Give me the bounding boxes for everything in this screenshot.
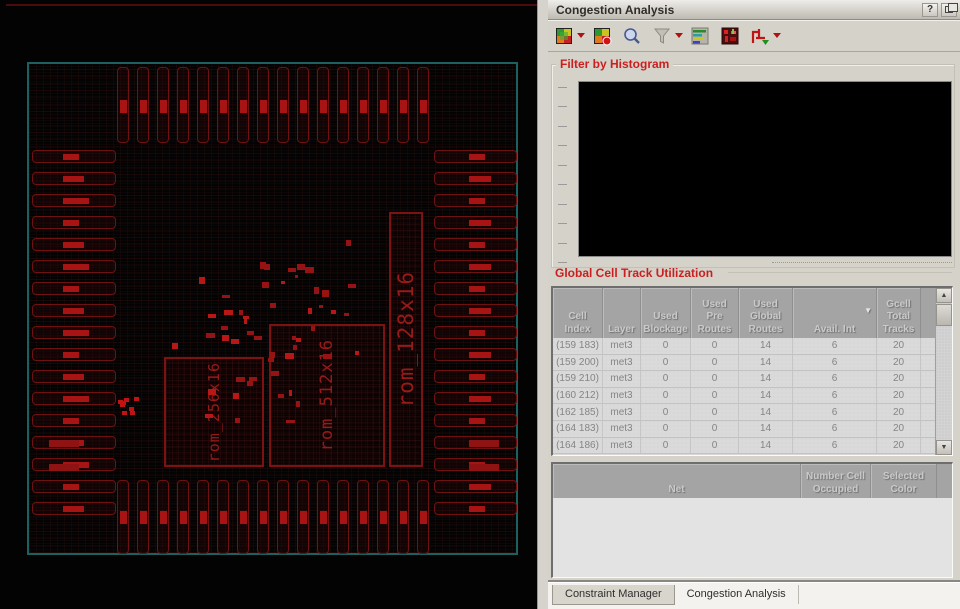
table-cell: 14 xyxy=(739,355,793,371)
pad-label-mark xyxy=(63,154,79,160)
io-pad[interactable] xyxy=(297,67,309,143)
placed-cell xyxy=(270,303,276,308)
net-column-header-1[interactable]: Number Cell Occupied xyxy=(801,464,871,498)
column-header-5[interactable]: Avail. Int▼ xyxy=(793,288,877,338)
pad-label-mark xyxy=(63,308,84,314)
pad-label-mark xyxy=(469,220,491,226)
io-pad[interactable] xyxy=(32,194,116,207)
macro-label: rom_256x16 xyxy=(205,362,223,462)
pad-label-mark xyxy=(63,374,84,380)
heatmap-dropdown-arrow[interactable] xyxy=(577,33,585,38)
io-pad[interactable] xyxy=(32,348,116,361)
histogram-axis-ticks xyxy=(558,87,574,263)
table-cell: 14 xyxy=(739,338,793,354)
placed-cell xyxy=(292,336,296,340)
pad-label-mark xyxy=(240,511,247,524)
table-cell: 0 xyxy=(641,388,691,404)
placed-cell xyxy=(295,275,298,278)
table-cell: 0 xyxy=(641,421,691,437)
placed-cell xyxy=(297,264,305,270)
io-pad[interactable] xyxy=(32,370,116,383)
utilization-table-frame: Cell IndexLayerUsed BlockageUsed Pre Rou… xyxy=(551,286,953,456)
pad-label-mark xyxy=(220,100,227,113)
axis-tick xyxy=(558,165,567,166)
io-pad[interactable] xyxy=(317,67,329,143)
help-button[interactable]: ? xyxy=(922,3,938,17)
io-pad[interactable] xyxy=(357,480,369,554)
pad-label-mark xyxy=(260,100,267,113)
io-pad[interactable] xyxy=(32,502,116,515)
io-pad[interactable] xyxy=(377,67,389,143)
axis-tick xyxy=(558,126,567,127)
io-pad[interactable] xyxy=(397,480,409,554)
axis-tick xyxy=(558,106,567,107)
pad-label-mark xyxy=(160,511,167,524)
io-pad[interactable] xyxy=(377,480,389,554)
io-pad[interactable] xyxy=(257,67,269,143)
placed-cell xyxy=(269,352,275,358)
axis-tick xyxy=(558,223,567,224)
hotspot-map-icon xyxy=(720,26,740,46)
io-pad[interactable] xyxy=(32,260,116,273)
io-pad[interactable] xyxy=(397,67,409,143)
macro-rom-256x16[interactable]: rom_256x16 xyxy=(164,357,264,467)
io-pad[interactable] xyxy=(434,414,517,427)
table-cell: 20 xyxy=(877,388,921,404)
placed-cell xyxy=(118,400,123,404)
placed-cell xyxy=(288,268,296,272)
table-cell: met3 xyxy=(603,388,641,404)
table-cell: 0 xyxy=(641,438,691,454)
io-pad[interactable] xyxy=(417,67,429,143)
pad-label-mark xyxy=(360,100,367,113)
die-boundary: rom_256x16 rom_512x16 rom_128x16 xyxy=(27,62,518,555)
pad-label-mark xyxy=(180,511,187,524)
placed-cell xyxy=(281,281,285,284)
io-pad[interactable] xyxy=(337,67,349,143)
table-row[interactable]: (159 200)met30014620 xyxy=(553,355,935,372)
io-pad[interactable] xyxy=(317,480,329,554)
placed-cell xyxy=(134,397,139,401)
io-pad[interactable] xyxy=(117,67,129,143)
placed-cell xyxy=(130,411,135,415)
table-cell: met3 xyxy=(603,404,641,420)
column-header-6[interactable]: Gcell Total Tracks xyxy=(877,288,921,338)
pad-label-mark xyxy=(63,198,89,204)
io-pad[interactable] xyxy=(434,172,517,185)
io-pad[interactable] xyxy=(32,414,116,427)
filter-button[interactable] xyxy=(649,23,675,49)
table-cell: 6 xyxy=(793,338,877,354)
pad-label-mark xyxy=(469,374,485,380)
table-cell: (160 212) xyxy=(553,388,603,404)
pad-label-mark xyxy=(380,100,387,113)
io-pad[interactable] xyxy=(417,480,429,554)
io-pad[interactable] xyxy=(157,480,169,554)
table-cell: 0 xyxy=(641,355,691,371)
io-pad[interactable] xyxy=(32,238,116,251)
axis-tick xyxy=(558,184,567,185)
column-header-2[interactable]: Used Blockage xyxy=(641,288,691,338)
hotspot-map-button[interactable] xyxy=(717,23,743,49)
io-pad[interactable] xyxy=(434,502,517,515)
io-pad[interactable] xyxy=(32,304,116,317)
table-cell: 0 xyxy=(691,438,739,454)
filter-icon xyxy=(652,26,672,46)
io-pad[interactable] xyxy=(157,67,169,143)
application-window: rom_256x16 rom_512x16 rom_128x16 Congest… xyxy=(0,0,960,609)
macro-label: rom_128x16 xyxy=(394,271,418,407)
scrollbar-thumb[interactable] xyxy=(936,304,952,326)
table-cell: 6 xyxy=(793,355,877,371)
table-cell: 0 xyxy=(691,421,739,437)
pad-label-mark xyxy=(63,396,89,402)
io-pad[interactable] xyxy=(32,216,116,229)
table-row[interactable]: (160 212)met30014620 xyxy=(553,388,935,405)
histogram-display-button[interactable] xyxy=(687,23,713,49)
io-pad[interactable] xyxy=(217,67,229,143)
macro-rom-512x16[interactable]: rom_512x16 xyxy=(269,324,385,467)
pad-label-mark xyxy=(280,100,287,113)
pad-label-mark xyxy=(63,484,79,490)
table-row[interactable]: (162 185)met30014620 xyxy=(553,404,935,421)
placed-cell xyxy=(268,358,274,362)
utilization-section-title: Global Cell Track Utilization xyxy=(555,266,713,280)
pad-label-mark xyxy=(200,511,207,524)
io-pad[interactable] xyxy=(237,480,249,554)
io-pad[interactable] xyxy=(434,194,517,207)
pad-label-mark xyxy=(63,506,84,512)
placed-cell xyxy=(278,394,284,398)
table-cell: (159 200) xyxy=(553,355,603,371)
placed-cell xyxy=(231,339,239,344)
scroll-down-button[interactable]: ▼ xyxy=(936,440,952,455)
io-pad[interactable] xyxy=(434,326,517,339)
pad-label-mark xyxy=(320,100,327,113)
table-cell: 6 xyxy=(793,371,877,387)
placed-cell xyxy=(236,377,245,382)
column-header-3[interactable]: Used Pre Routes xyxy=(691,288,739,338)
pad-label-mark xyxy=(63,264,89,270)
scrollbar-track[interactable] xyxy=(936,326,952,440)
table-cell: 0 xyxy=(691,388,739,404)
bottom-tabbar: Constraint Manager Congestion Analysis xyxy=(548,580,960,609)
congestion-heatmap-button[interactable] xyxy=(551,23,577,49)
placed-cell xyxy=(296,338,301,342)
power-pad-label-mark xyxy=(49,440,79,447)
pad-label-mark xyxy=(380,511,387,524)
table-cell: met3 xyxy=(603,371,641,387)
placed-cell xyxy=(323,354,331,359)
layout-viewer-canvas[interactable]: rom_256x16 rom_512x16 rom_128x16 xyxy=(0,0,537,609)
table-row[interactable]: (159 183)met30014620 xyxy=(553,338,935,355)
panel-title: Congestion Analysis xyxy=(548,3,922,17)
placed-cell xyxy=(208,314,216,318)
io-pad[interactable] xyxy=(177,67,189,143)
table-cell: 20 xyxy=(877,438,921,454)
pad-label-mark xyxy=(140,100,147,113)
column-header-0[interactable]: Cell Index xyxy=(553,288,603,338)
io-pad[interactable] xyxy=(297,480,309,554)
io-pad[interactable] xyxy=(434,370,517,383)
pad-label-mark xyxy=(120,511,127,524)
tab-constraint-manager[interactable]: Constraint Manager xyxy=(552,585,675,605)
table-cell: met3 xyxy=(603,338,641,354)
pad-label-mark xyxy=(63,176,84,182)
placed-cell xyxy=(208,389,216,395)
io-pad[interactable] xyxy=(177,480,189,554)
pad-label-mark xyxy=(469,484,491,490)
pad-label-mark xyxy=(469,396,491,402)
placed-cell xyxy=(308,308,312,314)
pad-label-mark xyxy=(240,100,247,113)
filter-dropdown-arrow[interactable] xyxy=(675,33,683,38)
placed-cell xyxy=(355,351,359,355)
table-cell: met3 xyxy=(603,355,641,371)
pad-label-mark xyxy=(469,352,491,358)
io-pad[interactable] xyxy=(434,480,517,493)
io-pad[interactable] xyxy=(32,172,116,185)
table-cell: 14 xyxy=(739,371,793,387)
io-pad[interactable] xyxy=(217,480,229,554)
pad-label-mark xyxy=(260,511,267,524)
io-pad[interactable] xyxy=(137,480,149,554)
io-pad[interactable] xyxy=(434,260,517,273)
table-cell: 0 xyxy=(641,404,691,420)
io-pad[interactable] xyxy=(434,348,517,361)
placed-cell xyxy=(172,343,178,349)
pad-label-mark xyxy=(469,308,491,314)
pad-label-mark xyxy=(400,100,407,113)
io-pad[interactable] xyxy=(32,282,116,295)
net-table-body[interactable] xyxy=(553,498,952,577)
placed-cell xyxy=(205,414,213,418)
placed-cell xyxy=(247,331,254,335)
placed-cell xyxy=(331,310,336,314)
placed-cell xyxy=(348,284,356,288)
io-pad[interactable] xyxy=(277,67,289,143)
pad-label-mark xyxy=(469,264,491,270)
pad-label-mark xyxy=(340,100,347,113)
route-display-icon xyxy=(749,26,771,46)
table-row[interactable]: (164 183)met30014620 xyxy=(553,421,935,438)
histogram-canvas[interactable] xyxy=(578,81,952,257)
congestion-heatmap-save-button[interactable] xyxy=(589,23,615,49)
table-cell: 20 xyxy=(877,371,921,387)
net-table-frame: NetNumber Cell OccupiedSelected Color xyxy=(551,462,953,578)
io-pad[interactable] xyxy=(197,67,209,143)
zoom-icon xyxy=(622,26,642,46)
panel-toolbar xyxy=(548,20,960,52)
pad-label-mark xyxy=(469,154,485,160)
io-pad[interactable] xyxy=(32,150,116,163)
placed-cell xyxy=(254,336,262,340)
pad-label-mark xyxy=(300,100,307,113)
utilization-table-header: Cell IndexLayerUsed BlockageUsed Pre Rou… xyxy=(553,288,935,338)
placed-cell xyxy=(122,411,127,415)
placed-cell xyxy=(311,326,315,331)
net-column-header-2[interactable]: Selected Color xyxy=(871,464,937,498)
pad-label-mark xyxy=(180,100,187,113)
pad-label-mark xyxy=(469,286,485,292)
io-pad[interactable] xyxy=(434,304,517,317)
placed-cell xyxy=(344,313,349,316)
histogram-section-title: Filter by Histogram xyxy=(556,57,673,71)
placed-cell xyxy=(222,295,230,298)
power-pad-label-mark xyxy=(469,440,499,447)
panel-splitter[interactable] xyxy=(537,0,548,609)
pad-label-mark xyxy=(63,220,79,226)
tab-congestion-analysis[interactable]: Congestion Analysis xyxy=(675,585,799,604)
pad-label-mark xyxy=(469,418,485,424)
placed-cell xyxy=(249,377,257,381)
placed-cell xyxy=(322,290,329,297)
table-cell: 0 xyxy=(691,404,739,420)
pad-label-mark xyxy=(63,418,79,424)
table-cell: 6 xyxy=(793,404,877,420)
panel-titlebar[interactable]: Congestion Analysis ? xyxy=(548,0,960,20)
placed-cell xyxy=(199,277,205,284)
table-cell: 0 xyxy=(691,371,739,387)
table-row[interactable]: (164 186)met30014620 xyxy=(553,438,935,455)
pad-label-mark xyxy=(220,511,227,524)
column-header-4[interactable]: Used Global Routes xyxy=(739,288,793,338)
placed-cell xyxy=(305,267,314,273)
axis-tick xyxy=(558,87,567,88)
axis-tick xyxy=(558,204,567,205)
placed-cell xyxy=(293,345,297,350)
io-pad[interactable] xyxy=(237,67,249,143)
histogram-groupbox: Filter by Histogram xyxy=(551,64,955,268)
table-cell: 14 xyxy=(739,388,793,404)
io-pad[interactable] xyxy=(434,216,517,229)
utilization-table-scrollbar[interactable]: ▲ ▼ xyxy=(935,288,952,455)
table-cell: 0 xyxy=(691,338,739,354)
io-pad[interactable] xyxy=(337,480,349,554)
placed-cell xyxy=(285,353,294,359)
column-header-1[interactable]: Layer xyxy=(603,288,641,338)
pad-label-mark xyxy=(400,511,407,524)
pad-label-mark xyxy=(469,198,485,204)
utilization-table: Cell IndexLayerUsed BlockageUsed Pre Rou… xyxy=(553,288,935,455)
route-display-button[interactable] xyxy=(747,23,773,49)
placed-cell xyxy=(346,240,351,246)
table-cell: (164 186) xyxy=(553,438,603,454)
placed-cell xyxy=(286,420,295,423)
placed-cell xyxy=(233,393,239,399)
macro-rom-128x16[interactable]: rom_128x16 xyxy=(389,212,423,467)
table-cell: 20 xyxy=(877,421,921,437)
placed-cell xyxy=(296,401,300,407)
histogram-axis-baseline xyxy=(772,261,952,263)
table-cell: 6 xyxy=(793,388,877,404)
pad-label-mark xyxy=(469,330,485,336)
power-pad-label-mark xyxy=(469,464,499,471)
io-pad[interactable] xyxy=(197,480,209,554)
pad-label-mark xyxy=(300,511,307,524)
placed-cell xyxy=(264,264,270,270)
table-cell: 20 xyxy=(877,355,921,371)
pad-label-mark xyxy=(469,506,485,512)
pad-label-mark xyxy=(140,511,147,524)
placed-cell xyxy=(239,310,243,315)
pad-label-mark xyxy=(160,100,167,113)
placed-cell xyxy=(235,418,240,423)
net-table-header: NetNumber Cell OccupiedSelected Color xyxy=(553,464,952,498)
table-cell: 0 xyxy=(641,371,691,387)
histogram-display-icon xyxy=(690,26,710,46)
placed-cell xyxy=(224,310,233,315)
table-cell: 6 xyxy=(793,421,877,437)
table-cell: (164 183) xyxy=(553,421,603,437)
io-pad[interactable] xyxy=(257,480,269,554)
table-row[interactable]: (159 210)met30014620 xyxy=(553,371,935,388)
pad-label-mark xyxy=(420,100,427,113)
congestion-analysis-panel: Congestion Analysis ? xyxy=(548,0,960,609)
pad-label-mark xyxy=(63,330,89,336)
placed-cell xyxy=(247,381,253,386)
scroll-up-button[interactable]: ▲ xyxy=(936,288,952,303)
float-button[interactable] xyxy=(941,3,957,17)
net-column-header-0[interactable]: Net xyxy=(553,464,801,498)
pad-label-mark xyxy=(469,242,485,248)
route-dropdown-arrow[interactable] xyxy=(773,33,781,38)
pad-label-mark xyxy=(280,511,287,524)
axis-tick xyxy=(558,243,567,244)
table-cell: met3 xyxy=(603,438,641,454)
io-pad[interactable] xyxy=(434,282,517,295)
placed-cell xyxy=(319,305,323,308)
utilization-table-body: (159 183)met30014620(159 200)met30014620… xyxy=(553,338,935,454)
table-cell: 14 xyxy=(739,421,793,437)
placed-cell xyxy=(221,326,228,330)
congestion-heatmap-icon xyxy=(554,26,574,46)
placed-cell xyxy=(262,282,269,288)
io-pad[interactable] xyxy=(434,238,517,251)
pad-label-mark xyxy=(200,100,207,113)
utilization-section-rule xyxy=(728,272,952,273)
placed-cell xyxy=(206,333,215,338)
io-pad[interactable] xyxy=(137,67,149,143)
io-pad[interactable] xyxy=(357,67,369,143)
axis-tick xyxy=(558,262,567,263)
table-cell: 20 xyxy=(877,404,921,420)
pad-label-mark xyxy=(340,511,347,524)
table-cell: 14 xyxy=(739,438,793,454)
table-cell: (162 185) xyxy=(553,404,603,420)
pad-label-mark xyxy=(469,176,491,182)
pad-label-mark xyxy=(63,352,79,358)
sort-indicator-icon: ▼ xyxy=(864,306,872,316)
io-pad[interactable] xyxy=(434,392,517,405)
io-pad[interactable] xyxy=(32,480,116,493)
io-pad[interactable] xyxy=(117,480,129,554)
pad-label-mark xyxy=(63,286,79,292)
pad-label-mark xyxy=(120,100,127,113)
io-pad[interactable] xyxy=(32,392,116,405)
table-cell: 14 xyxy=(739,404,793,420)
io-pad[interactable] xyxy=(32,326,116,339)
layout-top-edge xyxy=(6,4,537,6)
table-cell: (159 183) xyxy=(553,338,603,354)
table-cell: 6 xyxy=(793,438,877,454)
pad-label-mark xyxy=(63,242,84,248)
zoom-button[interactable] xyxy=(619,23,645,49)
io-pad[interactable] xyxy=(277,480,289,554)
axis-tick xyxy=(558,145,567,146)
io-pad[interactable] xyxy=(434,150,517,163)
congestion-heatmap-save-icon xyxy=(592,26,612,46)
